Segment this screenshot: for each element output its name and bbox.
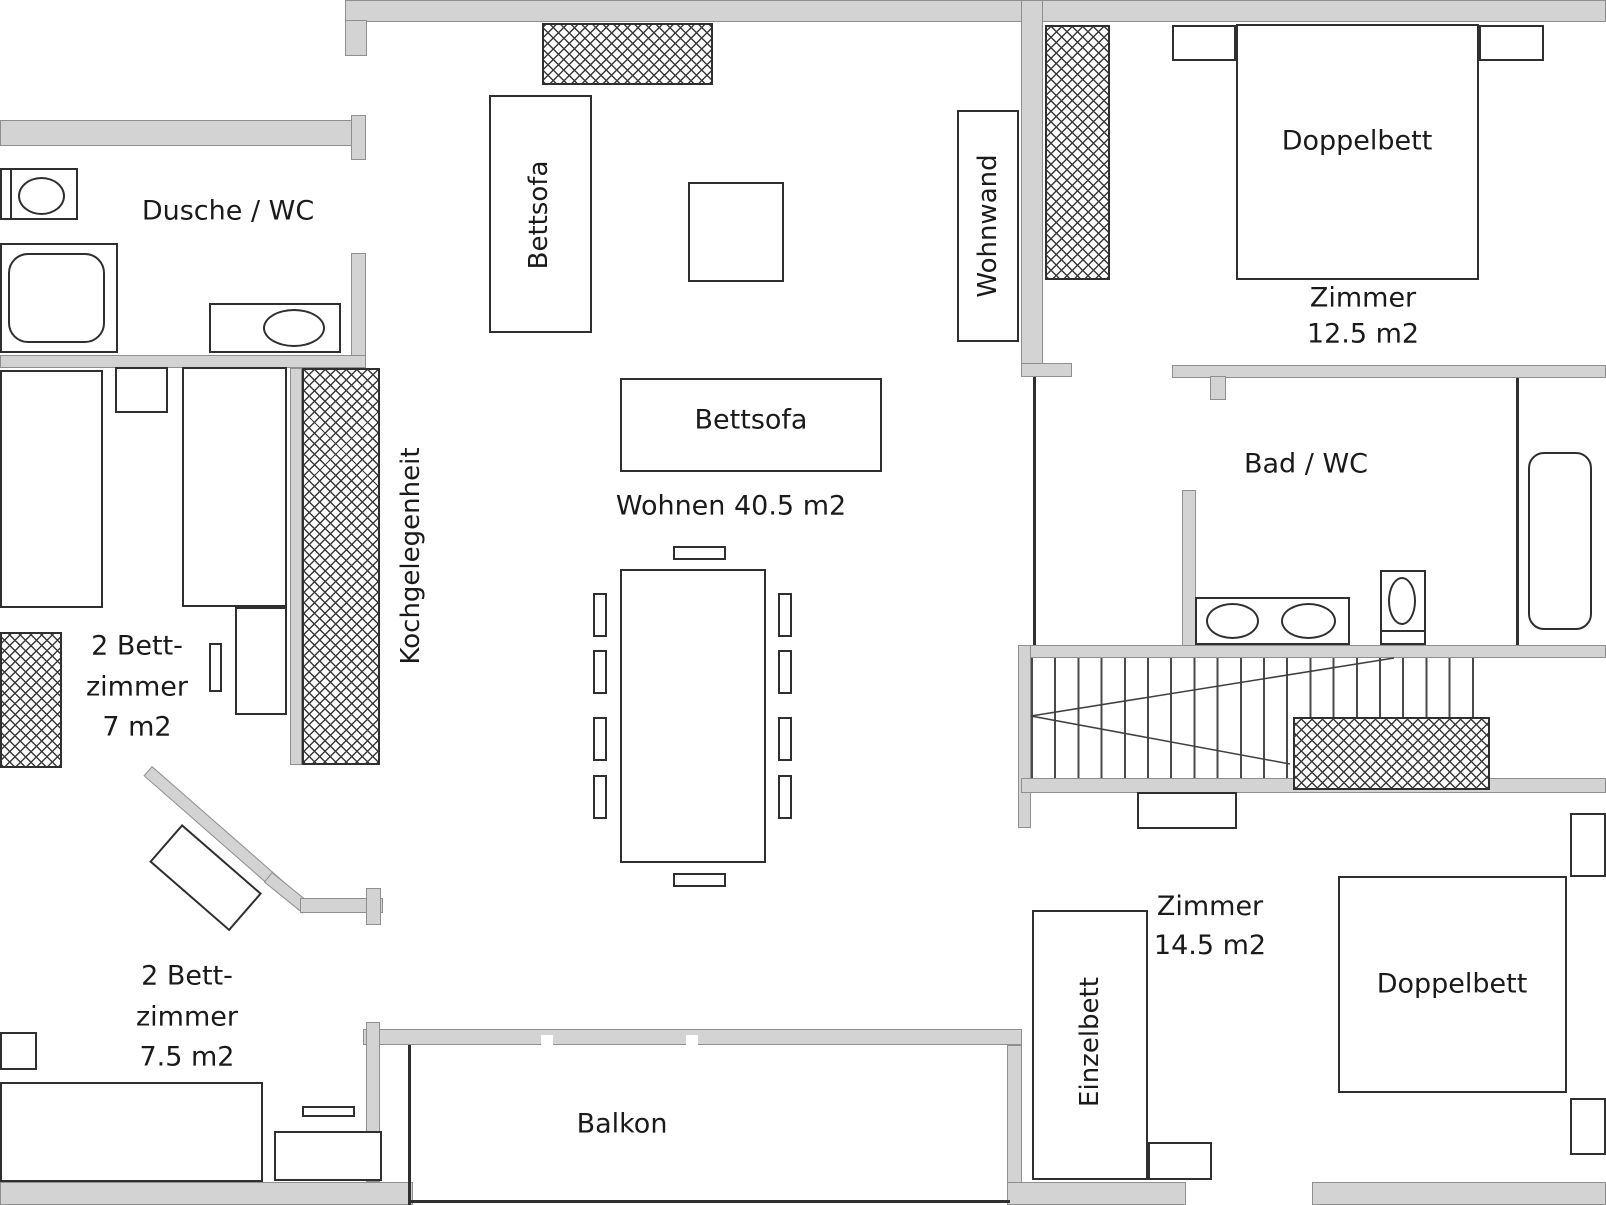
- nightstand-145-top: [1570, 813, 1606, 877]
- wall-balkon-right: [1007, 1045, 1022, 1205]
- sink-dusche-basin: [263, 309, 325, 347]
- label-bettsofa-wall: Bettsofa: [524, 161, 554, 270]
- wall-top: [345, 0, 1606, 22]
- toilet-bad-base: [1381, 630, 1425, 632]
- wall-dusche-top: [0, 120, 365, 146]
- chair-right-2: [778, 650, 792, 694]
- chair-right-1: [778, 593, 792, 637]
- label-doppelbett-145: Doppelbett: [1377, 969, 1528, 1000]
- nightstand-125-left: [1172, 25, 1236, 61]
- shower-basin: [8, 253, 105, 343]
- label-zimmer-125-line1: Zimmer: [1310, 281, 1416, 317]
- chair-left-4: [593, 775, 607, 819]
- nightstand-145-bottom: [1570, 1098, 1606, 1155]
- nightstand-7m2: [115, 367, 168, 413]
- wall-zimmer125-stub: [1210, 376, 1226, 400]
- nightstand-125-right: [1479, 25, 1544, 61]
- label-kochgelegenheit: Kochgelegenheit: [396, 447, 426, 664]
- shelf-75m2: [302, 1106, 355, 1117]
- window-marker-balkon-2: [686, 1035, 698, 1045]
- wall-top-left-stub: [345, 20, 367, 56]
- bed-7m2-right: [182, 367, 287, 607]
- label-zimmer-145: Zimmer 14.5 m2: [1154, 887, 1266, 965]
- bathtub: [1528, 452, 1592, 630]
- vanity-basin-left: [1206, 603, 1259, 639]
- label-bettzimmer-75-line3: 7.5 m2: [139, 1037, 234, 1078]
- chair-top: [673, 546, 726, 560]
- dining-table: [620, 569, 766, 863]
- bed-7m2-left: [0, 370, 103, 608]
- label-zimmer-145-line1: Zimmer: [1157, 887, 1263, 926]
- nightstand-75-top: [0, 1032, 37, 1070]
- wall-central-foot: [1021, 363, 1072, 377]
- closet-145: [1137, 792, 1237, 829]
- kochgelegenheit-hatch: [302, 368, 380, 765]
- wall-bottom-mid: [1007, 1182, 1186, 1205]
- wall-bottom-right: [1312, 1182, 1606, 1205]
- toilet-dusche-divider: [10, 168, 12, 220]
- label-wohnen: Wohnen 40.5 m2: [616, 491, 846, 522]
- label-bad-wc: Bad / WC: [1244, 449, 1368, 480]
- label-doppelbett-125: Doppelbett: [1282, 126, 1433, 157]
- wall-hall-cap-stub: [366, 888, 381, 925]
- sideboard-75m2: [274, 1131, 382, 1181]
- radiator-marker-7m2: [209, 643, 222, 692]
- toilet-dusche-bowl: [18, 177, 65, 215]
- label-wohnwand: Wohnwand: [973, 154, 1003, 297]
- label-balkon: Balkon: [577, 1109, 668, 1140]
- chair-bottom: [673, 873, 726, 887]
- label-zimmer-145-line2: 14.5 m2: [1154, 926, 1266, 965]
- sideboard-living-hatch: [542, 23, 713, 85]
- label-bettzimmer-7-line2: zimmer: [86, 667, 188, 708]
- door-leaf: [149, 824, 262, 931]
- label-bettzimmer-75-line1: 2 Bett-: [141, 956, 233, 997]
- window-marker-balkon-1: [541, 1035, 553, 1045]
- nightstand-einzelbett: [1148, 1142, 1212, 1180]
- wall-kitchen-left: [290, 368, 302, 765]
- wall-dusche-right-upper: [351, 115, 366, 160]
- line-balkon-railing-left: [408, 1045, 411, 1205]
- chair-right-3: [778, 717, 792, 761]
- label-bettsofa-center: Bettsofa: [695, 405, 808, 436]
- wall-zimmer125-bottom: [1172, 365, 1606, 378]
- vanity-basin-right: [1281, 603, 1336, 639]
- line-bathtub-alcove: [1516, 378, 1519, 645]
- bed-75m2: [0, 1082, 263, 1182]
- label-dusche-wc: Dusche / WC: [142, 196, 314, 227]
- chair-left-1: [593, 593, 607, 637]
- desk-7m2: [235, 607, 287, 715]
- label-einzelbett: Einzelbett: [1075, 977, 1105, 1107]
- toilet-bad-bowl: [1388, 577, 1416, 625]
- chair-left-2: [593, 650, 607, 694]
- label-bettzimmer-75: 2 Bett- zimmer 7.5 m2: [136, 956, 238, 1078]
- floor-plan: Dusche / WC 2 Bett- zimmer 7 m2 2 Bett- …: [0, 0, 1606, 1205]
- wall-bottom-left: [0, 1182, 413, 1205]
- wardrobe-stairs-hatch: [1293, 717, 1490, 790]
- label-zimmer-125-line2: 12.5 m2: [1307, 317, 1419, 353]
- wardrobe-zimmer7-hatch: [0, 632, 62, 768]
- line-hall-divider: [1033, 377, 1036, 645]
- chair-right-4: [778, 775, 792, 819]
- label-bettzimmer-75-line2: zimmer: [136, 997, 238, 1038]
- wardrobe-zimmer125-hatch: [1045, 25, 1110, 280]
- wall-dusche-right-lower: [351, 253, 366, 368]
- wall-bad-partition: [1182, 490, 1196, 658]
- chair-left-3: [593, 717, 607, 761]
- label-bettzimmer-7-line1: 2 Bett-: [91, 626, 183, 667]
- coffee-table: [688, 182, 784, 282]
- line-balkon-railing-bottom: [408, 1200, 1010, 1203]
- label-zimmer-125: Zimmer 12.5 m2: [1307, 281, 1419, 354]
- label-bettzimmer-7-line3: 7 m2: [102, 707, 171, 748]
- wall-central-divider: [1021, 0, 1043, 365]
- label-bettzimmer-7: 2 Bett- zimmer 7 m2: [86, 626, 188, 748]
